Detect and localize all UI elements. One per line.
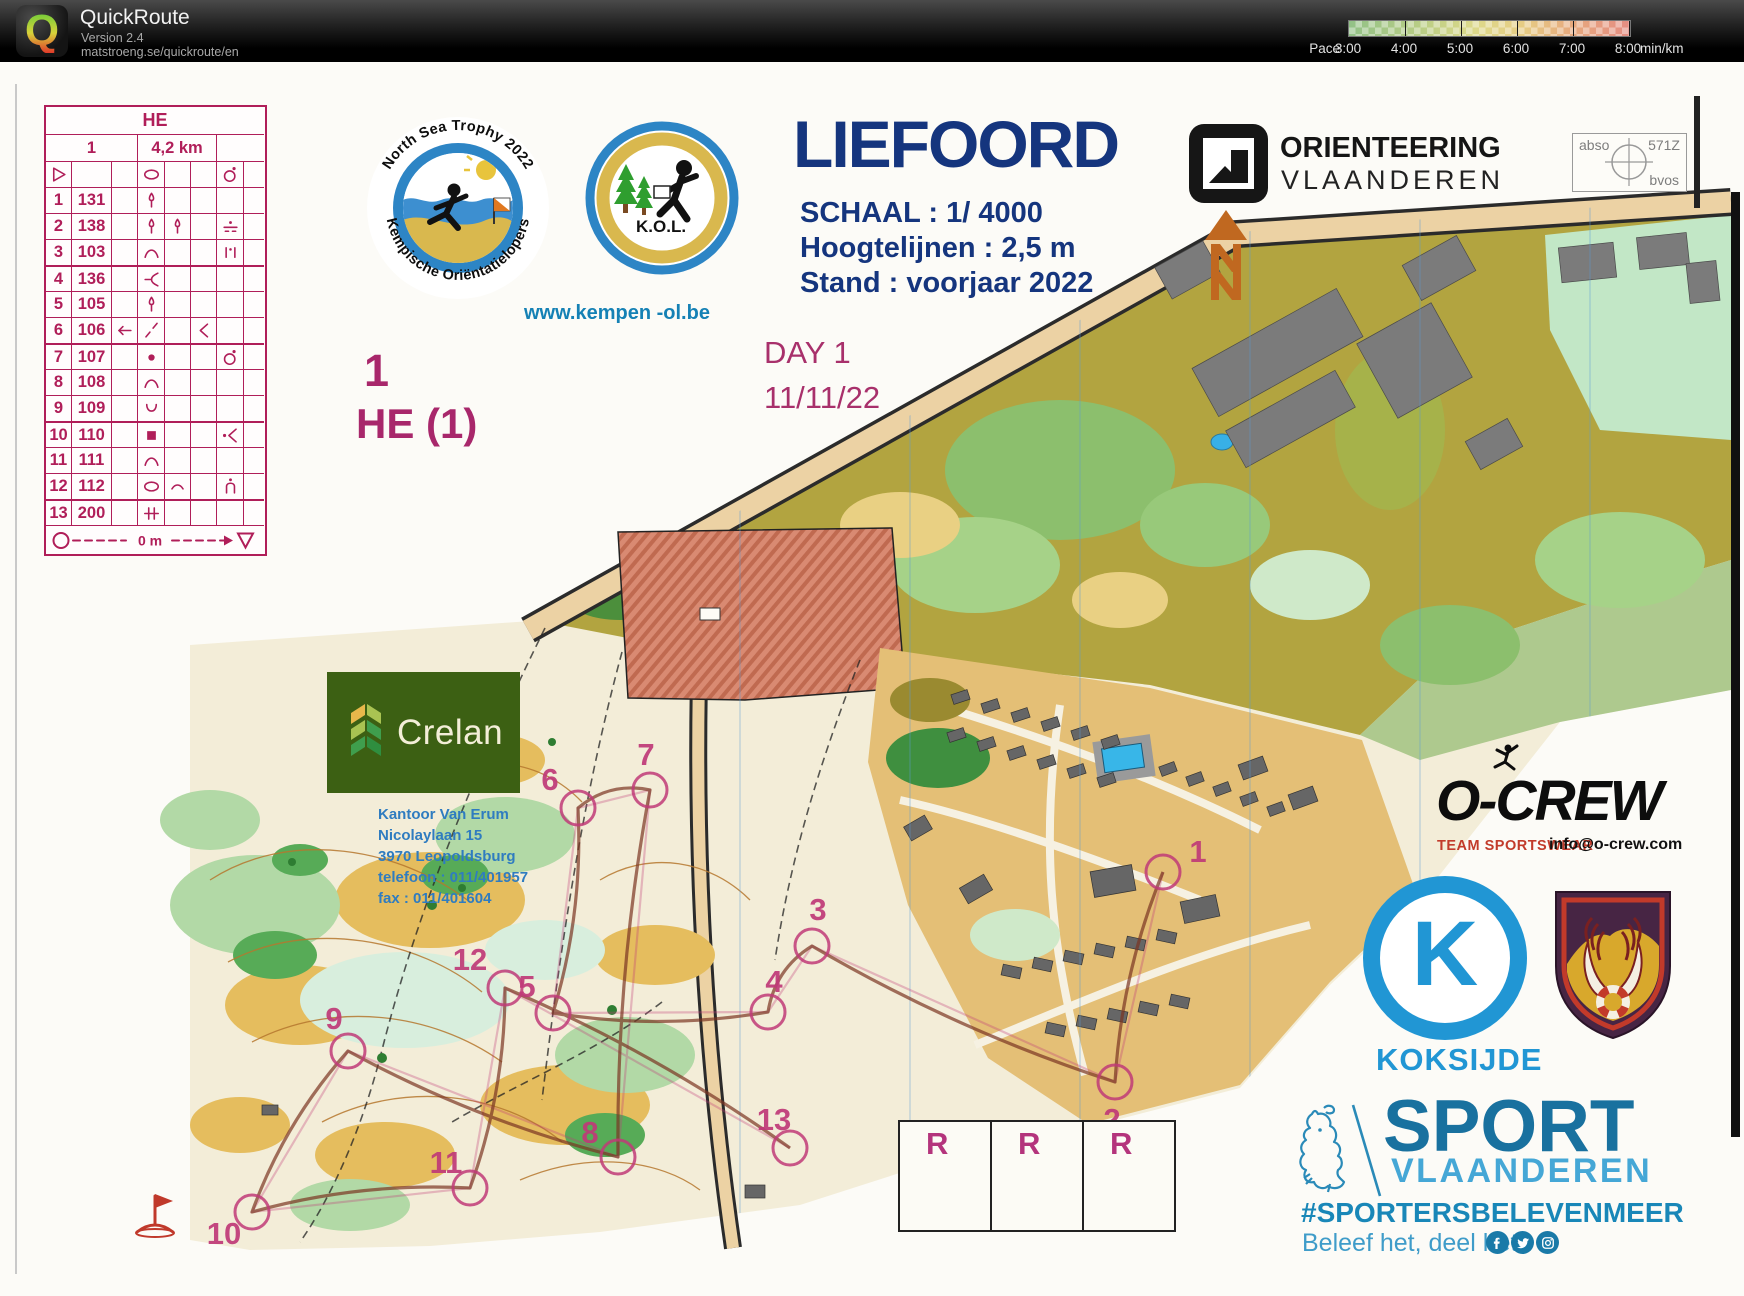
control-symbol — [138, 188, 165, 214]
quickroute-logo: Q — [16, 5, 68, 57]
control-number-label: 13 — [757, 1102, 791, 1137]
crelan-address-line: Kantoor Van Erum — [378, 804, 528, 825]
sheet-symbol-cell — [191, 162, 217, 188]
orienteering-vlaanderen-line2: VLAANDEREN — [1281, 165, 1504, 196]
control-code: 107 — [72, 344, 112, 370]
control-symbol — [112, 422, 138, 448]
crelan-address: Kantoor Van ErumNicolaylaan 153970 Leopo… — [378, 804, 528, 909]
hashtag: #SPORTERSBELEVENMEER — [1301, 1197, 1684, 1229]
map-border-line — [1694, 96, 1700, 208]
scan-edge-left — [15, 84, 17, 1274]
sheet-course-number: 1 — [46, 135, 138, 162]
control-code: 106 — [72, 318, 112, 344]
control-symbol — [165, 448, 191, 474]
r-box-cell: R — [898, 1120, 992, 1232]
north-arrow-icon — [1203, 210, 1249, 302]
north-sea-trophy-logo: North Sea Trophy 2022 Kempische Oriëntat… — [366, 112, 550, 304]
control-number: 11 — [46, 448, 72, 474]
control-symbol — [217, 344, 244, 370]
crelan-address-line: 3970 Leopoldsburg — [378, 846, 528, 867]
app-header: Q QuickRoute Version 2.4 matstroeng.se/q… — [0, 0, 1744, 62]
control-symbol — [165, 474, 191, 500]
control-code: 103 — [72, 240, 112, 266]
control-symbol — [165, 370, 191, 396]
control-symbol — [112, 500, 138, 526]
control-number: 6 — [46, 318, 72, 344]
crelan-logo: Crelan — [327, 672, 520, 793]
twitter-icon — [1511, 1231, 1534, 1254]
pace-tick — [1629, 21, 1630, 36]
control-number-label: 11 — [430, 1145, 463, 1180]
control-symbol — [244, 370, 264, 396]
military-badge — [1546, 880, 1680, 1044]
crelan-address-line: Nicolaylaan 15 — [378, 825, 528, 846]
event-day-block: DAY 1 11/11/22 — [764, 330, 880, 420]
control-number-label: 3 — [809, 892, 826, 927]
sheet-symbol-cell — [217, 162, 244, 188]
control-symbol — [191, 266, 217, 292]
control-symbol — [244, 188, 264, 214]
control-number-label: 10 — [207, 1216, 241, 1251]
control-symbol — [165, 240, 191, 266]
ocrew-email: info@o-crew.com — [1549, 836, 1682, 854]
pace-tick-label: 7:00 — [1559, 41, 1585, 56]
ocrew-logo: O-CREW — [1436, 768, 1661, 834]
control-number: 7 — [46, 344, 72, 370]
building — [1636, 232, 1689, 269]
control-symbol — [138, 344, 165, 370]
control-number: 10 — [46, 422, 72, 448]
control-number-label: 8 — [581, 1115, 598, 1150]
control-symbol — [191, 474, 217, 500]
hesa-logo — [124, 1186, 186, 1240]
koksijde-name: KOKSIJDE — [1376, 1042, 1542, 1078]
r-box-cell: R — [1082, 1120, 1176, 1232]
control-symbol — [112, 448, 138, 474]
control-symbol — [165, 344, 191, 370]
control-code: 109 — [72, 396, 112, 422]
control-symbol — [112, 396, 138, 422]
control-symbol — [191, 370, 217, 396]
course-name: HE (1) — [356, 400, 477, 448]
control-symbol — [217, 240, 244, 266]
control-symbol — [112, 292, 138, 318]
control-symbol — [138, 474, 165, 500]
control-symbol — [244, 474, 264, 500]
sheet-symbol-cell — [165, 162, 191, 188]
building — [1686, 261, 1720, 304]
pace-gradient-bar — [1348, 20, 1631, 37]
control-number: 5 — [46, 292, 72, 318]
control-symbol — [191, 422, 217, 448]
quickroute-window: Q QuickRoute Version 2.4 matstroeng.se/q… — [0, 0, 1744, 1296]
control-symbol — [244, 214, 264, 240]
control-symbol — [165, 500, 191, 526]
control-symbol — [138, 448, 165, 474]
control-symbol — [138, 214, 165, 240]
control-symbol — [138, 500, 165, 526]
reg-bvos: bvos — [1649, 172, 1679, 188]
r-box-letter: R — [1110, 1126, 1174, 1162]
control-number: 1 — [46, 188, 72, 214]
control-number: 2 — [46, 214, 72, 240]
control-symbol — [244, 344, 264, 370]
building — [1558, 242, 1616, 283]
flanders-lion-icon — [1290, 1100, 1390, 1202]
control-code: 105 — [72, 292, 112, 318]
sheet-blank-cell — [217, 135, 264, 162]
sheet-symbol-cell — [72, 162, 112, 188]
control-symbol — [191, 318, 217, 344]
jumper-icon — [1489, 742, 1525, 774]
svg-text:0 m: 0 m — [138, 532, 162, 548]
building — [262, 1105, 278, 1115]
r-boxes: RRR — [898, 1120, 1176, 1232]
sheet-symbol-cell — [138, 162, 165, 188]
control-symbol — [191, 500, 217, 526]
control-symbol — [138, 318, 165, 344]
control-symbol — [138, 240, 165, 266]
control-symbol — [112, 474, 138, 500]
control-code: 111 — [72, 448, 112, 474]
control-code: 200 — [72, 500, 112, 526]
quickroute-logo-letter: Q — [25, 9, 59, 53]
reg-abso: abso — [1579, 137, 1609, 153]
kol-club-logo: K.O.L. — [582, 118, 742, 278]
control-number-label: 9 — [325, 1001, 342, 1036]
control-symbol — [217, 188, 244, 214]
control-symbol — [112, 240, 138, 266]
sheet-course-length: 4,2 km — [138, 135, 217, 162]
control-symbol — [191, 344, 217, 370]
koksijde-letter: K — [1412, 908, 1478, 1000]
control-symbol — [217, 318, 244, 344]
control-number-label: 12 — [453, 942, 487, 977]
control-number-label: 7 — [637, 737, 654, 772]
crelan-name: Crelan — [397, 713, 503, 753]
control-code: 108 — [72, 370, 112, 396]
control-symbol — [244, 448, 264, 474]
control-number: 13 — [46, 500, 72, 526]
control-symbol — [217, 292, 244, 318]
sheet-symbol-cell — [112, 162, 138, 188]
control-symbol — [191, 292, 217, 318]
pace-tick-label: 8:00 — [1615, 41, 1641, 56]
control-symbol — [165, 188, 191, 214]
control-symbol — [217, 422, 244, 448]
app-name: QuickRoute — [80, 6, 190, 30]
control-number: 3 — [46, 240, 72, 266]
control-number-label: 6 — [541, 762, 558, 797]
control-symbol — [191, 448, 217, 474]
pace-tick-label: 3:00 — [1335, 41, 1361, 56]
control-number: 8 — [46, 370, 72, 396]
control-symbol — [112, 214, 138, 240]
control-symbol — [112, 370, 138, 396]
control-code: 138 — [72, 214, 112, 240]
reg-code: 571Z — [1648, 137, 1680, 153]
control-symbol — [217, 500, 244, 526]
sheet-footer: 0 m — [46, 526, 264, 554]
crelan-address-line: telefoon : 011/401957 — [378, 867, 528, 888]
control-code: 112 — [72, 474, 112, 500]
control-symbol — [165, 396, 191, 422]
control-symbol — [138, 370, 165, 396]
pace-tick — [1405, 21, 1406, 36]
sheet-class-header: HE — [46, 107, 264, 135]
pace-tick — [1517, 21, 1518, 36]
pace-label: Pace — [1288, 41, 1340, 56]
control-symbol — [244, 422, 264, 448]
control-symbol — [217, 214, 244, 240]
control-description-sheet: HE14,2 km1131213831034136510561067107810… — [44, 105, 267, 556]
control-symbol — [244, 500, 264, 526]
map-contour-interval: Hoogtelijnen : 2,5 m — [800, 231, 1093, 266]
sheet-symbol-cell — [46, 162, 72, 188]
control-symbol — [191, 188, 217, 214]
control-symbol — [244, 318, 264, 344]
scan-edge-right — [1731, 192, 1740, 1137]
control-symbol — [244, 396, 264, 422]
control-symbol — [244, 266, 264, 292]
control-number-label: 1 — [1189, 834, 1206, 869]
course-class: 1 — [364, 345, 389, 397]
control-symbol — [165, 318, 191, 344]
control-code: 110 — [72, 422, 112, 448]
social-icons — [1486, 1231, 1559, 1254]
control-symbol — [191, 214, 217, 240]
control-symbol — [112, 188, 138, 214]
map-title: LIEFOORD — [793, 106, 1118, 182]
pace-legend: Pace min/km 3:004:005:006:007:008:00 — [1288, 12, 1728, 62]
control-symbol — [217, 474, 244, 500]
control-number: 9 — [46, 396, 72, 422]
control-symbol — [165, 422, 191, 448]
pace-tick-label: 4:00 — [1391, 41, 1417, 56]
control-symbol — [138, 422, 165, 448]
control-symbol — [217, 448, 244, 474]
control-symbol — [112, 318, 138, 344]
koksijde-logo: K — [1363, 876, 1527, 1040]
registration-box: abso 571Z bvos — [1572, 133, 1687, 192]
orienteering-vlaanderen-icon — [1188, 123, 1269, 204]
control-symbol — [244, 292, 264, 318]
control-symbol — [138, 266, 165, 292]
orienteering-vlaanderen-line1: ORIENTEERING — [1280, 132, 1501, 165]
map-scale: SCHAAL : 1/ 4000 — [800, 196, 1093, 231]
event-date: 11/11/22 — [764, 375, 880, 420]
pace-tick — [1461, 21, 1462, 36]
control-symbol — [191, 396, 217, 422]
pace-tick-label: 6:00 — [1503, 41, 1529, 56]
sheet-symbol-cell — [244, 162, 264, 188]
pace-tick — [1573, 21, 1574, 36]
instagram-icon — [1536, 1231, 1559, 1254]
r-box-letter: R — [926, 1126, 990, 1162]
map-meta: SCHAAL : 1/ 4000 Hoogtelijnen : 2,5 m St… — [800, 196, 1093, 301]
control-code: 131 — [72, 188, 112, 214]
app-url: matstroeng.se/quickroute/en — [81, 45, 239, 59]
sport-vlaanderen-line2: VLAANDEREN — [1391, 1152, 1652, 1191]
control-symbol — [217, 396, 244, 422]
facebook-icon — [1486, 1231, 1509, 1254]
r-box-letter: R — [1018, 1126, 1082, 1162]
pace-tick-label: 5:00 — [1447, 41, 1473, 56]
control-symbol — [217, 370, 244, 396]
control-symbol — [244, 240, 264, 266]
control-symbol — [191, 240, 217, 266]
crelan-address-line: fax : 011/401604 — [378, 888, 528, 909]
control-symbol — [165, 292, 191, 318]
control-symbol — [165, 266, 191, 292]
control-code: 136 — [72, 266, 112, 292]
control-symbol — [138, 396, 165, 422]
building — [745, 1185, 765, 1198]
control-symbol — [112, 344, 138, 370]
kol-label: K.O.L. — [636, 217, 686, 236]
pace-unit-label: min/km — [1640, 41, 1684, 56]
control-number: 12 — [46, 474, 72, 500]
map-status: Stand : voorjaar 2022 — [800, 266, 1093, 301]
r-box-cell: R — [990, 1120, 1084, 1232]
control-symbol — [165, 214, 191, 240]
app-version: Version 2.4 — [81, 31, 144, 45]
control-number: 4 — [46, 266, 72, 292]
wheat-icon — [343, 702, 389, 764]
control-symbol — [138, 292, 165, 318]
control-symbol — [112, 266, 138, 292]
event-day: DAY 1 — [764, 330, 880, 375]
club-website: www.kempen -ol.be — [524, 302, 710, 325]
control-number-label: 4 — [765, 964, 783, 999]
control-symbol — [217, 266, 244, 292]
